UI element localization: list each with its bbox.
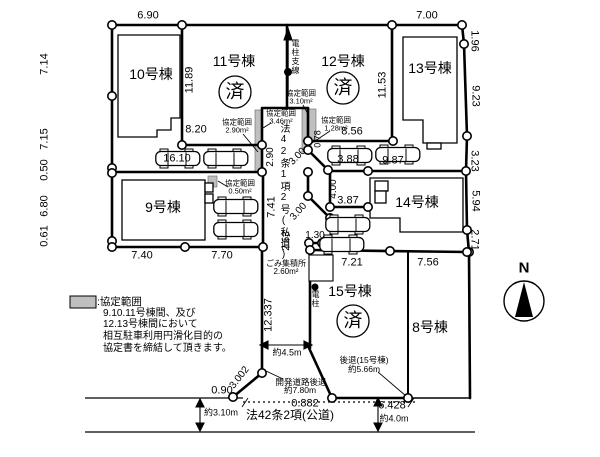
car-icon	[214, 197, 258, 216]
legend-swatch	[70, 296, 96, 308]
trash-collection-area	[309, 255, 333, 281]
legend-line-1: 9.10.11号棟間、及び	[103, 309, 196, 319]
public-road-label: 法42条2項(公道)	[246, 409, 334, 421]
dim-left-6-80: 6.80	[40, 195, 51, 216]
dim-right-5-94: 5.94	[470, 190, 481, 211]
dim-0-90: 0.90	[211, 386, 232, 397]
sold-stamp-15: 済	[343, 312, 362, 331]
car-icon	[326, 215, 370, 234]
dim-2-90: 2.90	[266, 147, 276, 166]
agreement-310-line2: 3.10m²	[289, 97, 312, 105]
private-road-label: 法42条1項2号(私道)	[278, 123, 288, 261]
dim-right-3-23: 3.23	[469, 150, 480, 171]
dim-9-87: 9.87	[382, 156, 403, 167]
sold-stamp-11: 済	[225, 83, 244, 102]
dim-left-0-50: 0.50	[40, 159, 51, 180]
dim-7-56: 7.56	[417, 258, 438, 269]
dim-11-53: 11.53	[378, 72, 389, 99]
dim-top-6-90: 6.90	[137, 11, 158, 22]
agreement-050-line2: 0.50m²	[228, 187, 251, 195]
dim-11-89: 11.89	[185, 67, 196, 94]
legend-title: :協定範囲	[97, 297, 142, 308]
dim-1-30: 1.30	[305, 231, 324, 241]
lot-label-11: 11号棟	[213, 54, 256, 68]
utility-pole-label: 電柱	[311, 290, 319, 308]
sold-stamp-12: 済	[333, 79, 352, 98]
building-13	[403, 37, 457, 143]
dim-top-7-00: 7.00	[416, 11, 437, 22]
agreement-290-line2: 2.90m²	[225, 126, 248, 134]
compass-n: N	[519, 261, 530, 276]
lot-label-14: 14号棟	[395, 195, 439, 209]
agreement-128-line2: 1.28m²	[324, 124, 347, 132]
legend-line-4: 協定書を締結して頂きます。	[103, 344, 232, 354]
car-icon	[320, 235, 364, 254]
dim-approx-3-10m: 約3.10m	[204, 409, 238, 418]
dim-3-87: 3.87	[337, 196, 358, 207]
legend-line-3: 相互駐車利用円滑化目的の	[103, 332, 223, 342]
car-icon	[214, 220, 258, 239]
dim-left-7-14: 7.14	[40, 53, 51, 74]
dim-6-428: 6.428	[378, 401, 406, 412]
dim-16-10: 16.10	[163, 154, 191, 165]
dim-0-78: 0.78	[314, 130, 323, 148]
dim-7-40: 7.40	[131, 251, 152, 262]
pole-guy-wire-label: 電柱支線	[291, 39, 299, 75]
site-plan-page: 6.907.007.147.150.506.800.6111.898.2016.…	[0, 0, 600, 457]
dim-7-70: 7.70	[211, 251, 232, 262]
dim-3-88: 3.88	[337, 155, 358, 166]
dim-right-2-71: 2.71	[469, 229, 480, 250]
dev-road-setback-line2: 約7.80m	[284, 386, 316, 395]
lot-label-9: 9号棟	[145, 200, 181, 214]
dim-right-1-96: 1.96	[469, 30, 480, 51]
dim-7-41: 7.41	[267, 196, 278, 217]
trash-area-line2: 2.60m²	[274, 268, 299, 276]
dim-left-7-15: 7.15	[40, 128, 51, 149]
dim-12-337: 12.337	[264, 298, 275, 332]
dim-8-20: 8.20	[185, 125, 206, 136]
dim-approx-4-5m: 約4.5m	[272, 349, 301, 358]
dim-left-0-61: 0.61	[40, 225, 51, 246]
lot-label-10: 10号棟	[129, 67, 173, 81]
setback-15-line2: 約5.66m	[348, 365, 380, 374]
dim-right-9-23: 9.23	[470, 85, 481, 106]
dim-7-21: 7.21	[341, 258, 362, 269]
building-13-step	[427, 143, 441, 149]
lot-label-13: 13号棟	[408, 61, 452, 75]
car-icon	[204, 149, 248, 168]
compass-icon	[504, 281, 544, 321]
lot-label-8: 8号棟	[412, 320, 448, 334]
building-10	[118, 35, 180, 137]
dim-approx-4-0m: 約4.0m	[379, 415, 408, 424]
legend-line-2: 12.13号棟間において	[103, 320, 198, 330]
lot-label-15: 15号棟	[328, 284, 372, 298]
lot-label-12: 12号棟	[321, 54, 365, 68]
